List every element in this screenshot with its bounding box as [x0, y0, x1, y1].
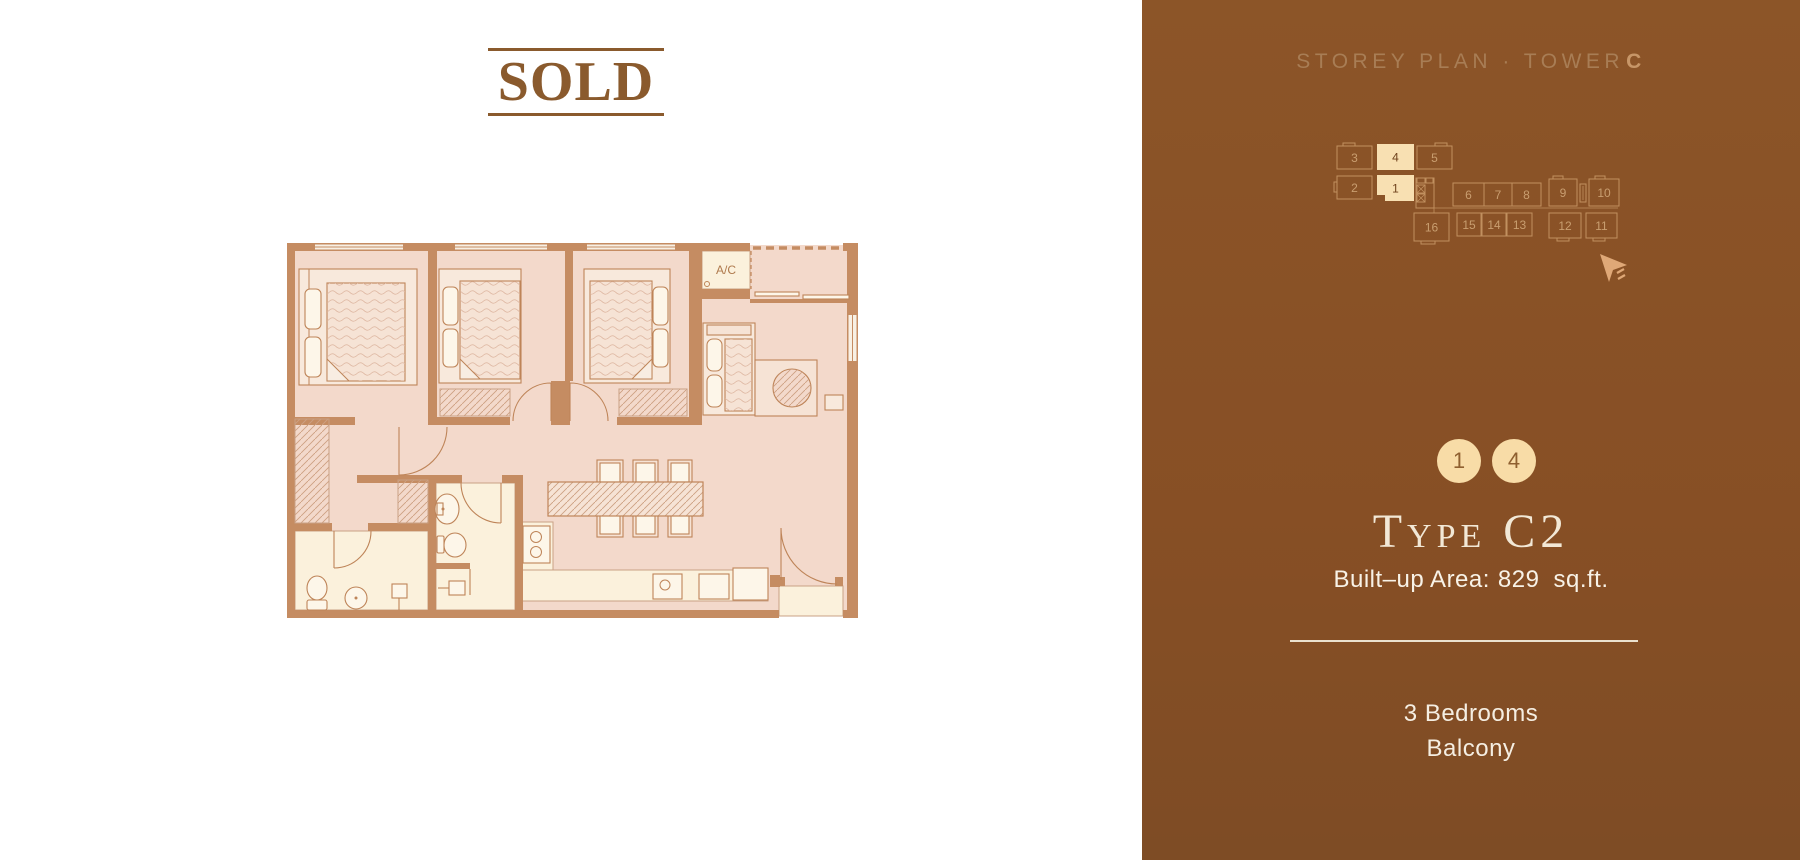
storey-unit-3[interactable]: 3	[1337, 146, 1372, 169]
storey-unit-4[interactable]: 4	[1377, 144, 1414, 170]
sold-label: SOLD	[488, 51, 664, 113]
svg-text:3: 3	[1351, 151, 1358, 165]
svg-text:11: 11	[1595, 219, 1608, 233]
svg-text:5: 5	[1431, 151, 1438, 165]
svg-text:10: 10	[1597, 186, 1611, 200]
svg-text:1: 1	[1392, 182, 1399, 196]
storey-unit-11[interactable]: 11	[1586, 213, 1617, 238]
storey-unit-16[interactable]: 16	[1414, 213, 1449, 241]
svg-text:4: 4	[1392, 151, 1399, 165]
ac-label: A/C	[716, 263, 736, 277]
selected-unit-badge-4: 4	[1492, 439, 1536, 483]
storey-unit-1[interactable]: 1	[1377, 175, 1414, 201]
storey-unit-2[interactable]: 2	[1337, 176, 1372, 199]
mouse-cursor-icon	[1598, 252, 1628, 289]
storey-unit-13[interactable]: 13	[1507, 213, 1532, 236]
built-up-area: Built–up Area:829sq.ft.	[1142, 566, 1800, 594]
feature-balcony: Balcony	[1142, 735, 1800, 763]
built-up-unit: sq.ft.	[1553, 566, 1608, 593]
storey-unit-9[interactable]: 9	[1549, 179, 1577, 206]
built-up-value: 829	[1498, 566, 1540, 593]
tower-letter: C	[1626, 50, 1646, 73]
storey-plan-map: 3 4 5 2 1 6 7 8 9 10 16 15 14 13 12 11	[1333, 141, 1622, 252]
svg-text:9: 9	[1560, 186, 1567, 200]
storey-unit-10[interactable]: 10	[1589, 179, 1619, 206]
storey-unit-8[interactable]: 8	[1512, 183, 1541, 206]
storey-unit-14[interactable]: 14	[1482, 213, 1506, 236]
floor-plan: A/C	[287, 243, 858, 618]
hall-wardrobe	[295, 419, 329, 523]
storey-unit-15[interactable]: 15	[1457, 213, 1481, 236]
floor-plan-drawing: A/C	[287, 243, 858, 618]
svg-text:7: 7	[1495, 188, 1502, 202]
storey-unit-12[interactable]: 12	[1549, 213, 1581, 238]
svg-text:8: 8	[1523, 188, 1530, 202]
built-up-label: Built–up Area:	[1333, 566, 1489, 593]
svg-text:13: 13	[1513, 218, 1527, 232]
sold-stamp: SOLD	[488, 48, 664, 116]
details-panel: STOREY PLAN · TOWERC 3 4 5	[1142, 0, 1800, 860]
storey-unit-7[interactable]: 7	[1484, 183, 1512, 206]
feature-bedrooms: 3 Bedrooms	[1142, 700, 1800, 728]
svg-text:15: 15	[1462, 218, 1476, 232]
bedroom1-bed	[299, 269, 417, 385]
svg-text:12: 12	[1558, 219, 1572, 233]
svg-text:14: 14	[1487, 218, 1501, 232]
storey-plan-header: STOREY PLAN · TOWERC	[1142, 50, 1800, 74]
floorplan-viewer: SOLD	[0, 0, 1800, 860]
unit-type-title: Type C2	[1142, 504, 1800, 559]
plan-panel: SOLD	[0, 0, 1142, 860]
storey-unit-6[interactable]: 6	[1453, 183, 1484, 206]
divider-line	[1290, 640, 1638, 642]
storey-units: 3 4 5 2 1 6 7 8 9 10 16 15 14 13 12 11	[1334, 143, 1619, 244]
selected-unit-badge-1: 1	[1437, 439, 1481, 483]
closet-wardrobe	[398, 480, 428, 523]
storey-unit-5[interactable]: 5	[1417, 146, 1452, 169]
svg-text:2: 2	[1351, 181, 1358, 195]
corridor-line	[1434, 208, 1618, 213]
storey-plan-header-text: STOREY PLAN · TOWER	[1296, 50, 1624, 73]
svg-text:16: 16	[1425, 221, 1439, 235]
bedroom2-bed	[439, 269, 521, 416]
svg-text:6: 6	[1465, 188, 1472, 202]
